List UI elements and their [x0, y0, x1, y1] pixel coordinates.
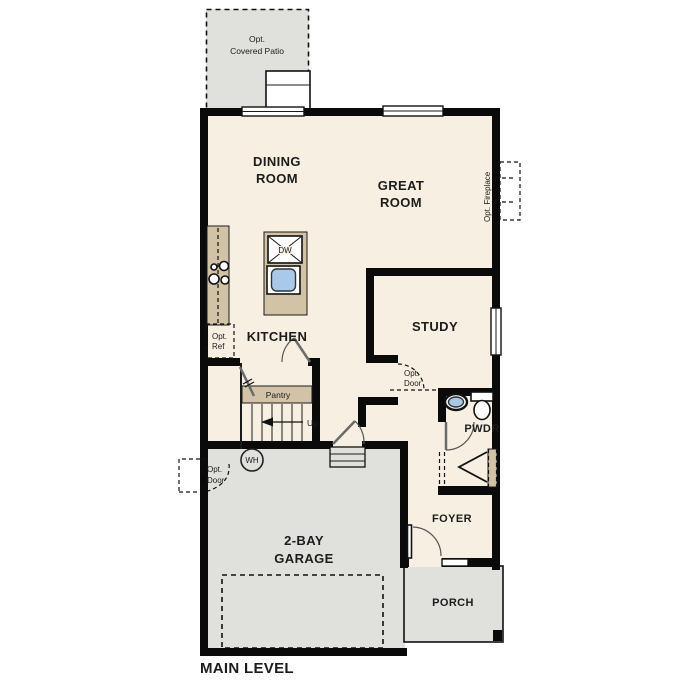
wh-label: WH — [245, 456, 259, 465]
opt-door-study-label-1: Opt. — [404, 369, 419, 378]
powder-sink — [445, 394, 467, 410]
dining-label-2: ROOM — [256, 171, 298, 186]
front-sidelite-window — [442, 559, 468, 566]
chimney — [266, 71, 310, 111]
floorplan-canvas: Opt. Covered Patio DINING ROOM GREAT ROO… — [0, 0, 687, 687]
front-door-leaf — [408, 525, 412, 558]
opt-fireplace-label: Opt. Fireplace — [483, 171, 492, 222]
plan-title: MAIN LEVEL — [200, 660, 294, 677]
up-label: Up — [307, 418, 318, 428]
opt-door-study-label-2: Door — [404, 379, 422, 388]
opt-door-garage-label-2: Door — [207, 476, 225, 485]
pantry-label: Pantry — [266, 390, 291, 400]
floorplan-drawing: Opt. Covered Patio DINING ROOM GREAT ROO… — [0, 0, 687, 687]
great-room-label-2: ROOM — [380, 195, 422, 210]
powder-label: PWDR — [464, 423, 499, 435]
porch-column — [493, 630, 502, 641]
foyer-label: FOYER — [432, 513, 472, 525]
dw-label: DW — [278, 246, 292, 255]
opt-ref-label-1: Opt. — [212, 332, 227, 341]
kitchen-label: KITCHEN — [247, 329, 308, 344]
study-label: STUDY — [412, 319, 458, 334]
kitchen-sink — [267, 266, 300, 294]
stair-stringer — [240, 363, 242, 449]
front-door-opening — [409, 558, 442, 567]
garage-label-2: GARAGE — [274, 551, 333, 566]
great-room-label-1: GREAT — [378, 178, 425, 193]
closet-shelf — [488, 449, 497, 487]
porch-label: PORCH — [432, 597, 474, 609]
opt-door-garage-label-1: Opt. — [207, 465, 222, 474]
patio-label-1: Opt. — [249, 34, 265, 44]
garage-floor — [203, 446, 405, 652]
patio-label-2: Covered Patio — [230, 46, 284, 56]
dining-label-1: DINING — [253, 154, 301, 169]
fireplace-bump — [500, 162, 520, 220]
garage-label-1: 2-BAY — [284, 533, 324, 548]
garage-steps — [330, 447, 365, 467]
opt-ref-label-2: Ref — [212, 342, 225, 351]
